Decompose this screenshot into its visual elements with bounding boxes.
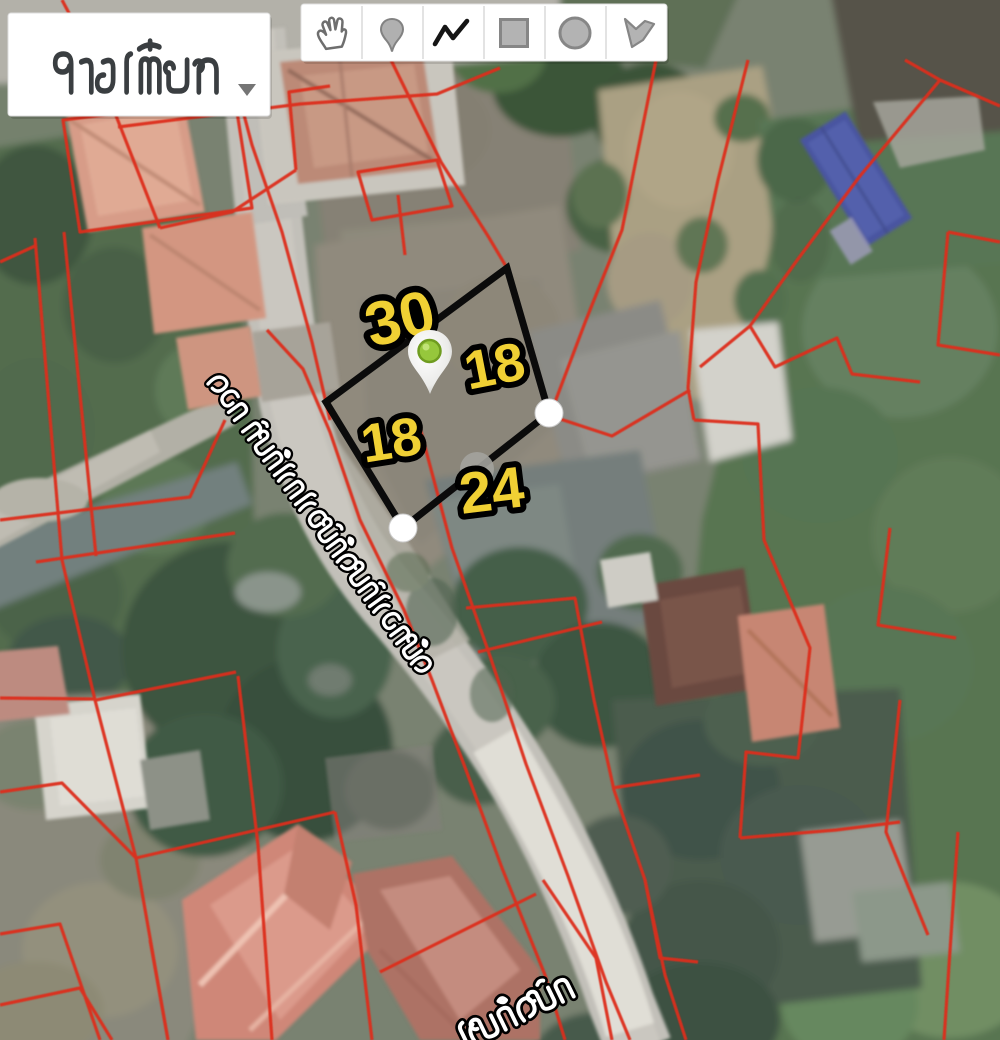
svg-text:24: 24 [456,454,528,526]
svg-text:18: 18 [357,406,426,475]
svg-text:18: 18 [459,331,529,401]
